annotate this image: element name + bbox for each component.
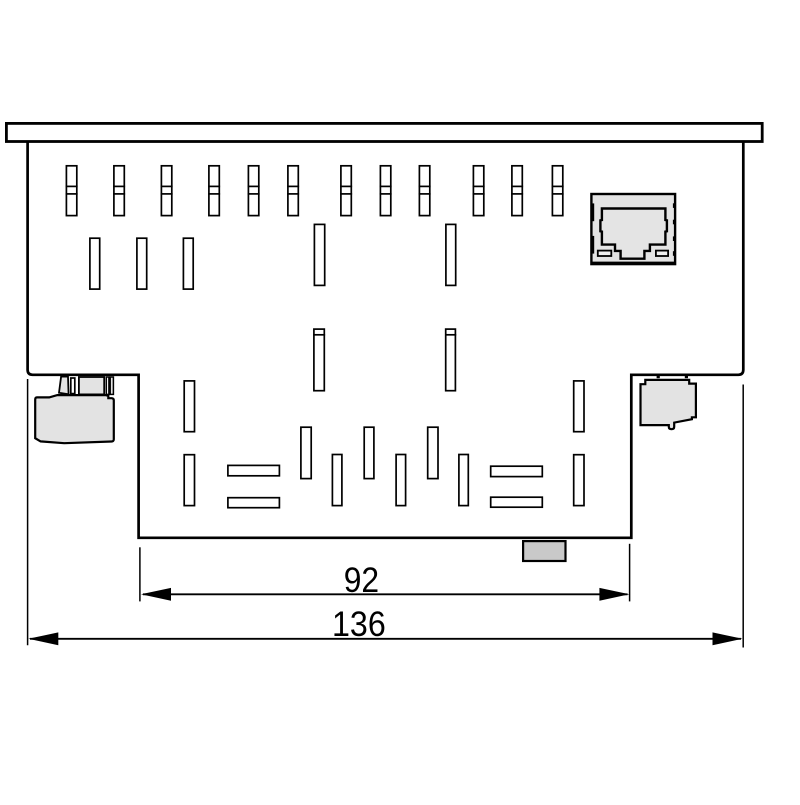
svg-text:92: 92 bbox=[344, 560, 379, 600]
svg-text:136: 136 bbox=[332, 604, 386, 644]
